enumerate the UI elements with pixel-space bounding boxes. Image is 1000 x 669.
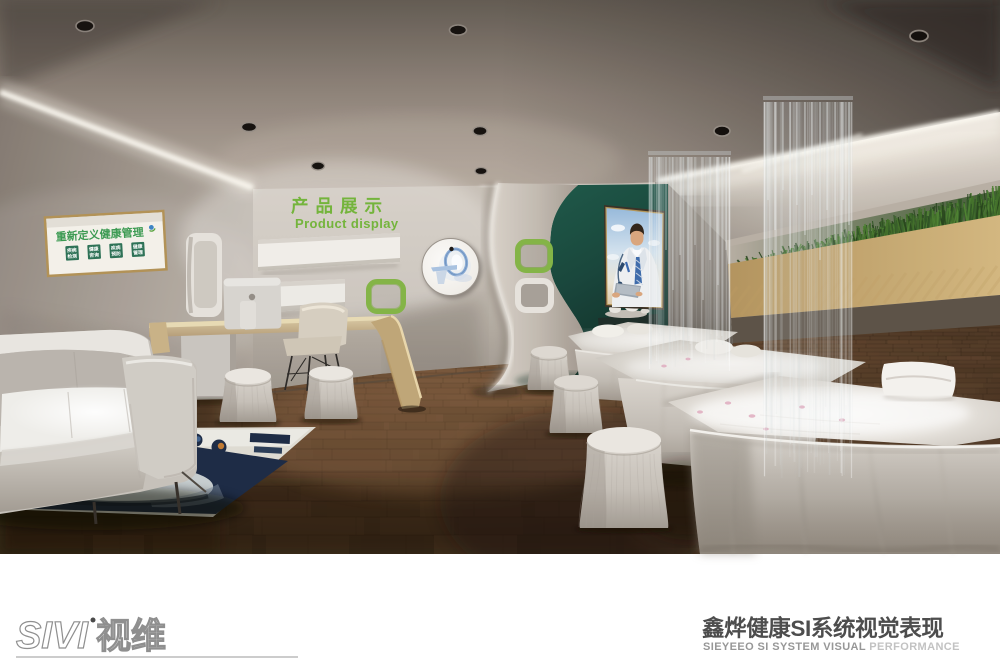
svg-text:产品展示: 产品展示	[291, 196, 389, 216]
svg-text:SIVI: SIVI	[16, 615, 89, 657]
svg-text:Product display: Product display	[295, 216, 399, 231]
svg-text:视维: 视维	[96, 617, 166, 656]
svg-text:鑫烨健康SI系统视觉表现: 鑫烨健康SI系统视觉表现	[701, 615, 943, 641]
svg-text:SIEYEEO SI SYSTEM VISUAL PERFO: SIEYEEO SI SYSTEM VISUAL PERFORMANCE	[703, 641, 960, 653]
